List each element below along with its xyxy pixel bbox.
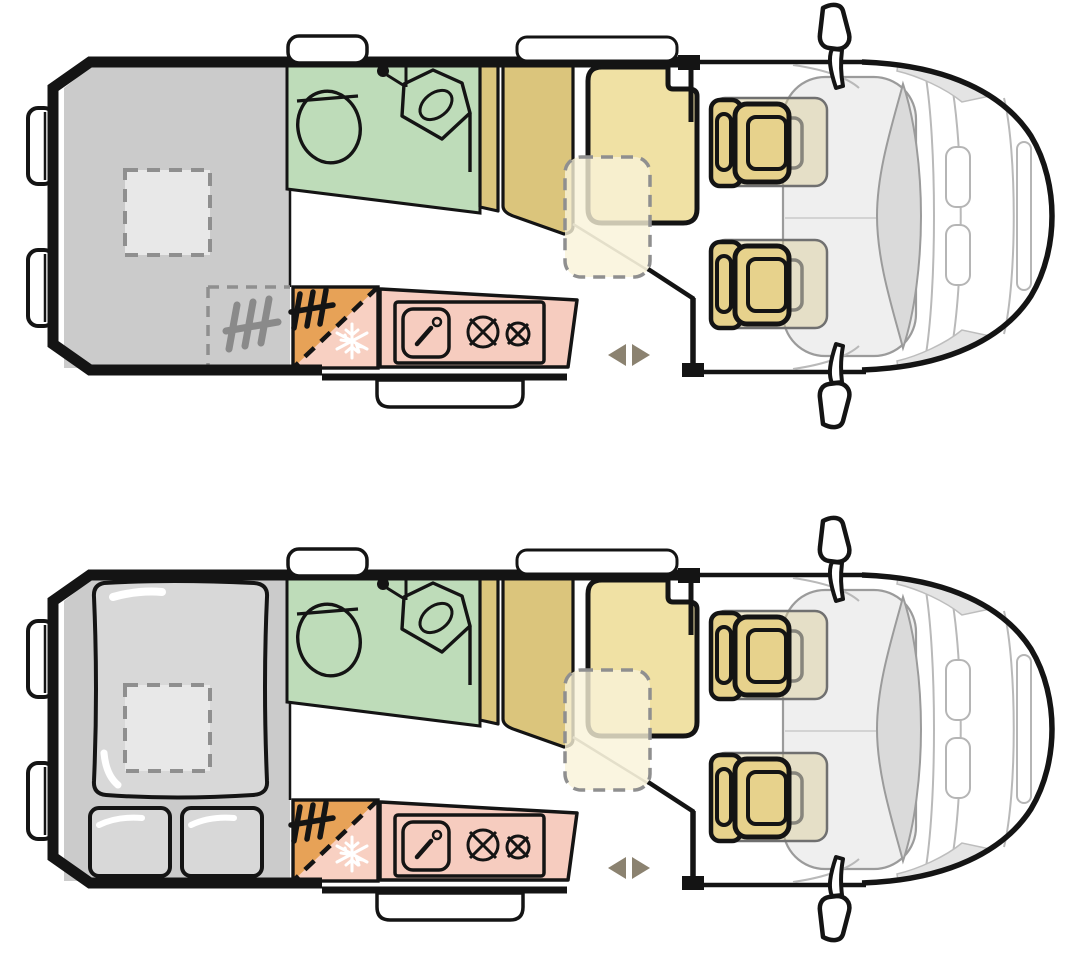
floor-plan-day (28, 5, 1052, 427)
floor-plan-night (28, 518, 1052, 940)
floorplan-diagram (0, 0, 1076, 960)
campervan-floorplan-canvas (0, 0, 1076, 960)
